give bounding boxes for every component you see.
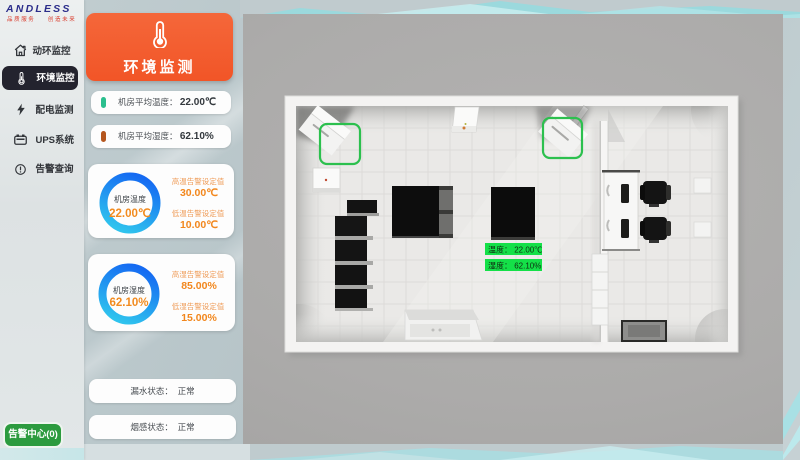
- svg-text:温度： 22.00℃: 温度： 22.00℃: [488, 245, 542, 255]
- svg-text:湿度： 62.10%: 湿度： 62.10%: [488, 261, 541, 271]
